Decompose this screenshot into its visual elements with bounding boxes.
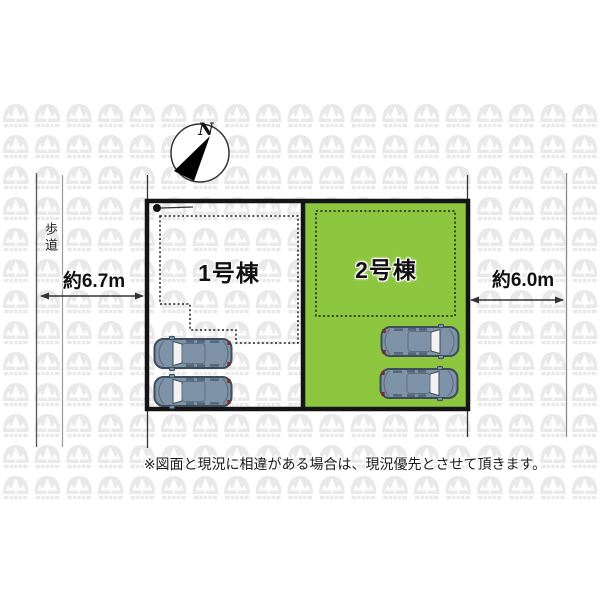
plan-linework — [0, 0, 600, 600]
site-plan-canvas: N 歩道 約6.7m 約6.0m 1号棟 2号棟 ※図面と現況に相違がある場合は… — [0, 0, 600, 600]
car-icon — [382, 324, 459, 358]
car-icon — [381, 366, 458, 400]
disclaimer-note: ※図面と現況に相違がある場合は、現況優先とさせて頂きます。 — [90, 454, 600, 474]
car-icon — [155, 374, 232, 408]
utility-pole-icon — [153, 204, 161, 212]
utility-pole-line — [161, 207, 193, 208]
building-1-label: 1号棟 — [159, 254, 299, 288]
dimension-right-label: 約6.0m — [463, 265, 583, 292]
dimension-left-label: 約6.7m — [34, 266, 154, 293]
building-2-label: 2号棟 — [316, 251, 456, 285]
north-label: N — [192, 120, 220, 140]
car-icon — [155, 336, 232, 370]
sidewalk-label: 歩道 — [41, 222, 60, 254]
